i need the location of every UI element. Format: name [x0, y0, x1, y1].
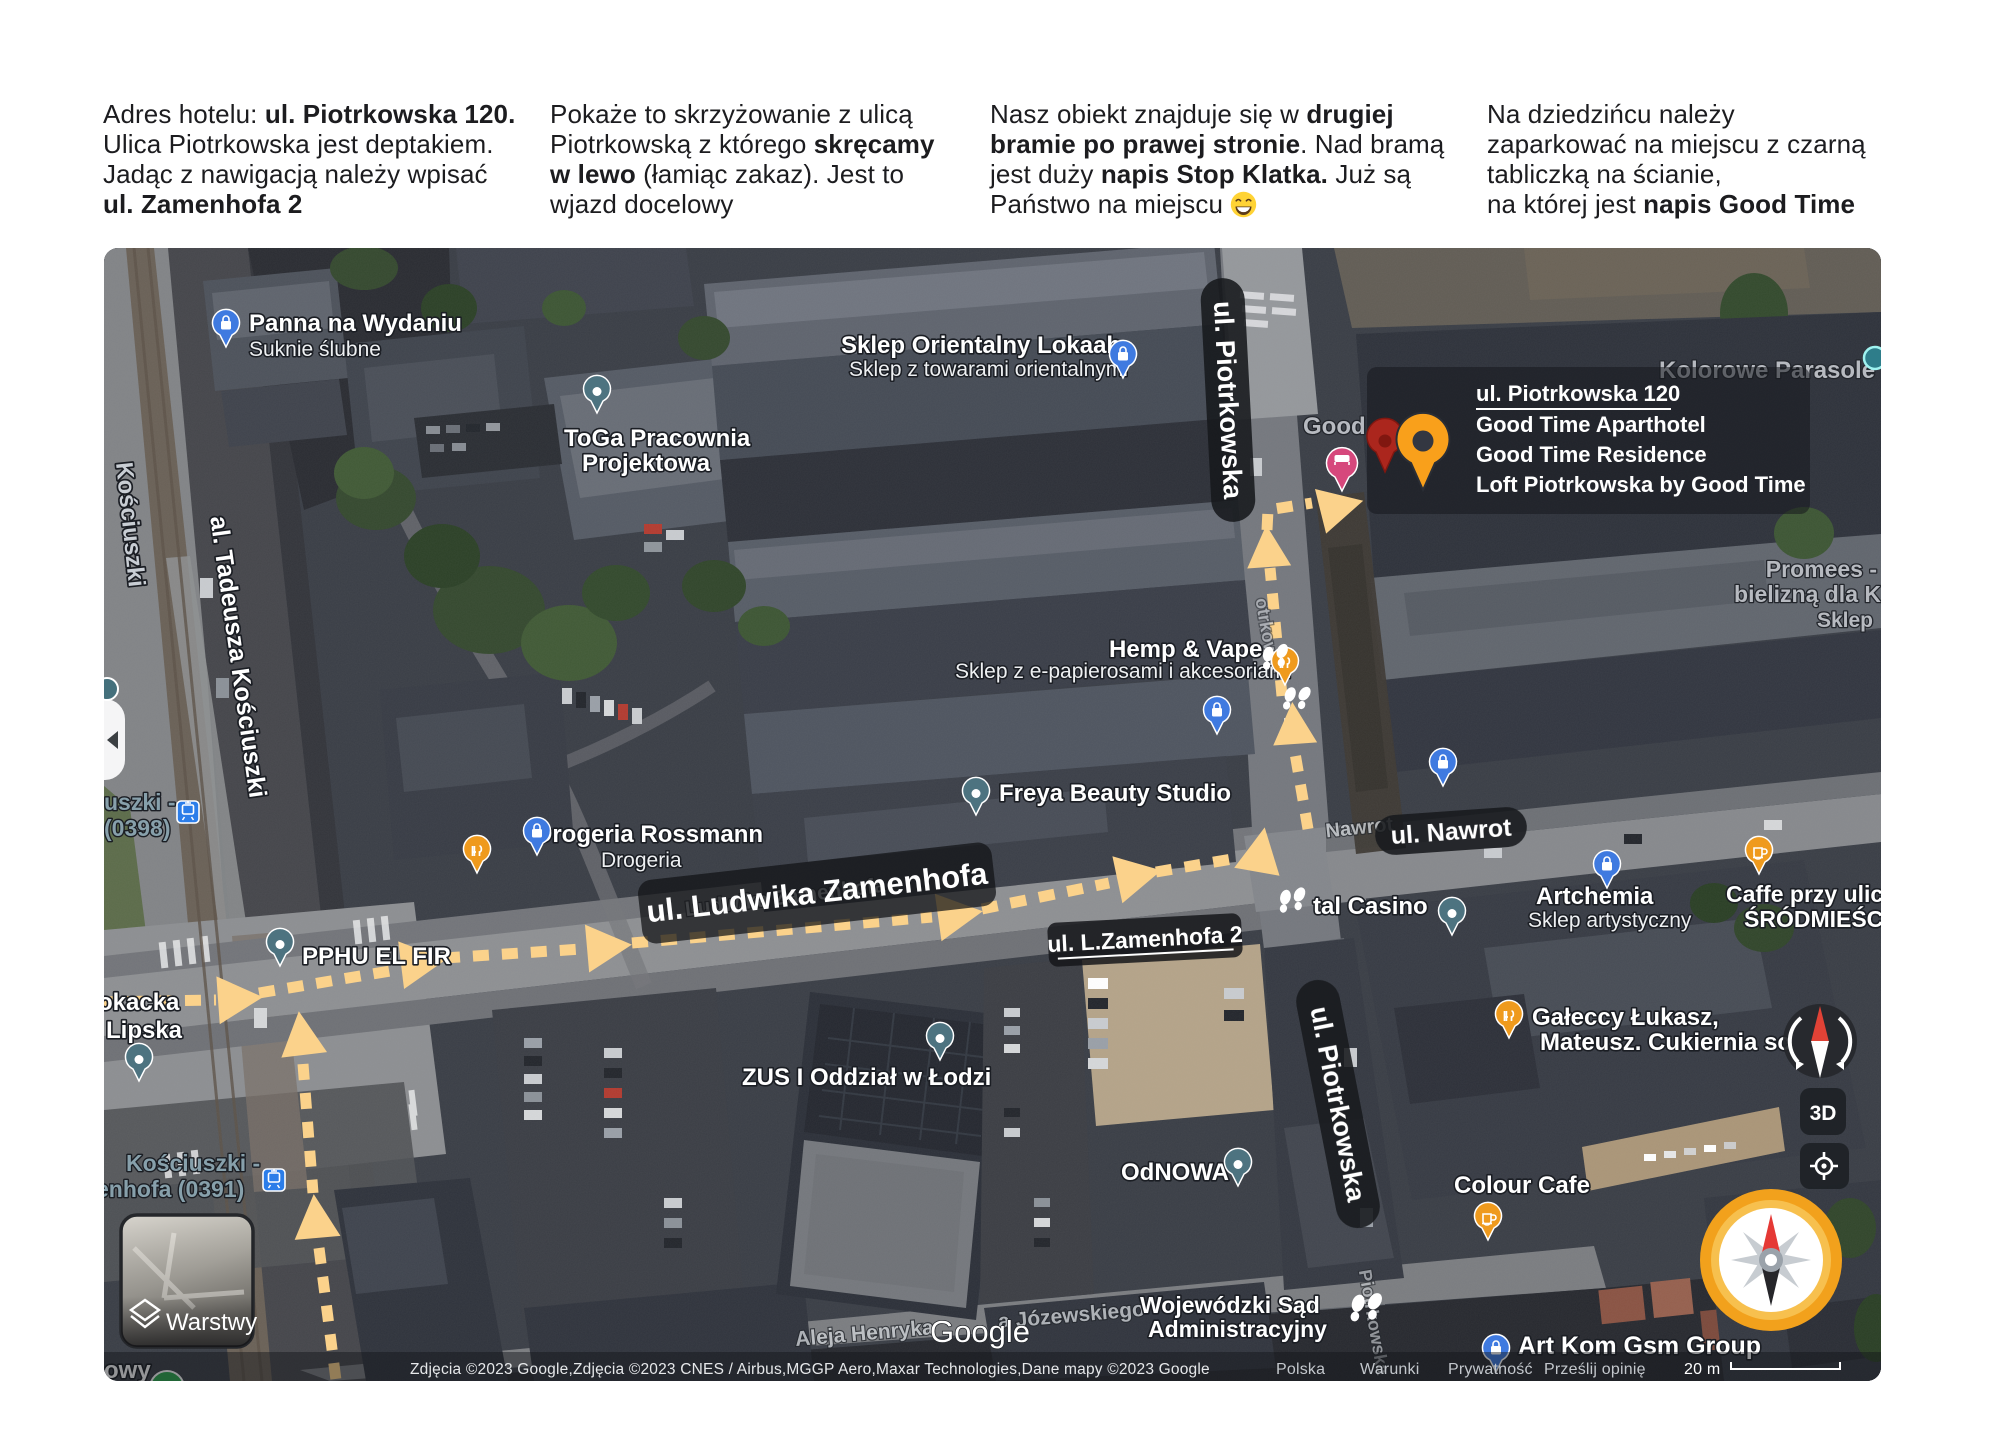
svg-text:Warstwy: Warstwy: [166, 1309, 257, 1336]
svg-text:Panna na Wydaniu: Panna na Wydaniu: [249, 310, 462, 337]
svg-text:Good: Good: [1303, 413, 1366, 440]
svg-text:Colour Cafe: Colour Cafe: [1454, 1172, 1590, 1199]
svg-text:Prywatność: Prywatność: [1448, 1361, 1533, 1378]
svg-text:Good Time Aparthotel: Good Time Aparthotel: [1476, 412, 1706, 437]
svg-text:Sklep z towarami orientalnymi: Sklep z towarami orientalnymi: [849, 358, 1128, 381]
svg-text:enhofa (0391): enhofa (0391): [104, 1176, 244, 1202]
svg-text:okacka: okacka: [104, 989, 180, 1016]
svg-text:PPHU EL FIR: PPHU EL FIR: [302, 943, 451, 970]
svg-text:Projektowa: Projektowa: [582, 450, 711, 477]
svg-text:Wojewódzki Sąd: Wojewódzki Sąd: [1140, 1292, 1320, 1318]
svg-text:Gałeccy Łukasz,: Gałeccy Łukasz,: [1532, 1004, 1719, 1031]
svg-text:3D: 3D: [1810, 1102, 1837, 1125]
svg-text:OdNOWA: OdNOWA: [1121, 1159, 1229, 1186]
svg-text:ŚRÓDMIEŚCIE: ŚRÓDMIEŚCIE: [1744, 905, 1881, 932]
svg-text:Administracyjny: Administracyjny: [1148, 1316, 1327, 1342]
svg-text:Good Time Residence: Good Time Residence: [1476, 442, 1707, 467]
svg-text:bielizną dla K: bielizną dla K: [1734, 581, 1881, 607]
svg-text:Drogeria Rossmann: Drogeria Rossmann: [535, 821, 763, 848]
svg-text:Caffe przy ulic: Caffe przy ulic: [1726, 881, 1881, 907]
svg-text:Promees -: Promees -: [1766, 556, 1877, 582]
svg-text:Polska: Polska: [1276, 1361, 1325, 1378]
svg-text:Kościuszki -: Kościuszki -: [126, 1150, 260, 1176]
svg-text:Lipska: Lipska: [106, 1017, 183, 1044]
svg-text:Sklep Orientalny Lokaah: Sklep Orientalny Lokaah: [841, 332, 1121, 359]
svg-text:Loft Piotrkowska by Good Time: Loft Piotrkowska by Good Time: [1476, 472, 1806, 497]
svg-text:Sklep z e-papierosami i akceso: Sklep z e-papierosami i akcesoriami: [955, 660, 1291, 683]
svg-text:Sklep artystyczny: Sklep artystyczny: [1528, 909, 1692, 932]
svg-text:Sklep: Sklep: [1817, 609, 1873, 632]
svg-text:ZUS I Oddział w Łodzi: ZUS I Oddział w Łodzi: [742, 1064, 991, 1091]
svg-text:Artchemia: Artchemia: [1536, 883, 1654, 910]
svg-text:Prześlij opinię: Prześlij opinię: [1544, 1361, 1646, 1378]
svg-text:Warunki: Warunki: [1360, 1361, 1420, 1378]
svg-text:Zdjęcia ©2023 Google,Zdjęcia ©: Zdjęcia ©2023 Google,Zdjęcia ©2023 CNES …: [410, 1361, 1210, 1378]
svg-text:uszki -: uszki -: [104, 789, 176, 815]
svg-text:Hemp & Vape: Hemp & Vape: [1109, 636, 1262, 663]
svg-text:Drogeria: Drogeria: [601, 849, 682, 872]
svg-text:(0398): (0398): [104, 815, 170, 841]
svg-text:Google: Google: [930, 1314, 1030, 1349]
svg-text:Suknie ślubne: Suknie ślubne: [249, 338, 381, 361]
svg-text:ToGa Pracownia: ToGa Pracownia: [564, 425, 751, 452]
svg-text:tal Casino: tal Casino: [1313, 893, 1428, 920]
svg-text:Mateusz. Cukiernia sc: Mateusz. Cukiernia sc: [1540, 1029, 1791, 1056]
svg-text:Freya Beauty Studio: Freya Beauty Studio: [999, 780, 1231, 807]
svg-text:20 m: 20 m: [1684, 1361, 1720, 1378]
svg-text:ul. Piotrkowska 120: ul. Piotrkowska 120: [1476, 381, 1680, 406]
